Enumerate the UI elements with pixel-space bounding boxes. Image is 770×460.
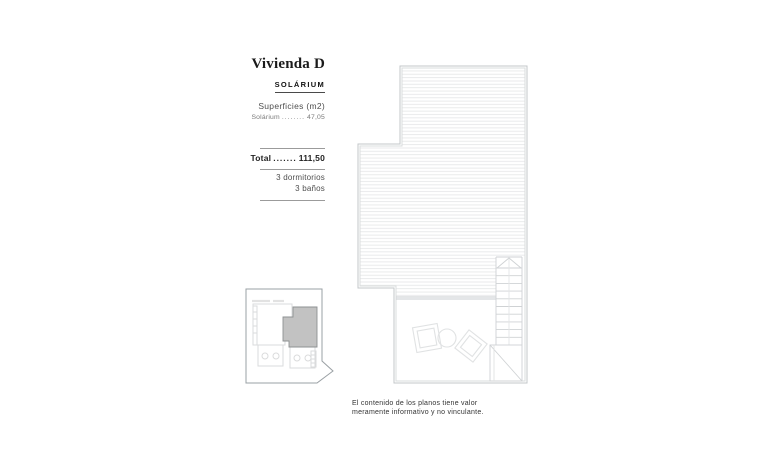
total-label: Total <box>251 153 272 163</box>
key-plan-highlighted-unit <box>283 307 317 347</box>
dot-leader: ....... <box>273 153 297 163</box>
divider-middle <box>260 169 325 170</box>
round-table <box>438 329 456 347</box>
disclaimer: El contenido de los planos tiene valor m… <box>352 400 484 418</box>
surface-row-solarium: Solárium........47,05 <box>247 114 325 121</box>
solarium-deck-hatch <box>360 68 525 297</box>
detail-bathrooms: 3 baños <box>247 184 325 195</box>
lounge-chair-left <box>413 324 442 353</box>
lounge-chair-right <box>455 330 487 362</box>
stair-landing <box>490 345 522 381</box>
staircase <box>496 257 522 345</box>
unit-subtitle-wrap: SOLÁRIUM <box>247 74 325 93</box>
site-key-plan <box>238 283 338 388</box>
deck-divider-wall <box>396 297 496 299</box>
detail-bedrooms: 3 dormitorios <box>247 173 325 184</box>
total-row: Total.......111,50 <box>247 153 325 163</box>
disclaimer-line-1: El contenido de los planos tiene valor <box>352 400 484 409</box>
divider-top <box>260 148 325 149</box>
dot-leader: ........ <box>282 114 305 121</box>
divider-bottom <box>260 200 325 201</box>
unit-subtitle: SOLÁRIUM <box>275 80 325 93</box>
terrace-furniture <box>413 324 488 363</box>
disclaimer-line-2: meramente informativo y no vinculante. <box>352 409 484 418</box>
surface-value: 47,05 <box>307 114 325 121</box>
surface-label: Solárium <box>251 114 279 121</box>
total-value: 111,50 <box>299 153 325 163</box>
landing-diagonal <box>490 345 522 381</box>
main-floor-plan <box>350 50 550 395</box>
surfaces-heading: Superficies (m2) <box>247 101 325 111</box>
info-panel: Vivienda D SOLÁRIUM Superficies (m2) Sol… <box>247 55 325 201</box>
unit-title: Vivienda D <box>247 55 325 73</box>
